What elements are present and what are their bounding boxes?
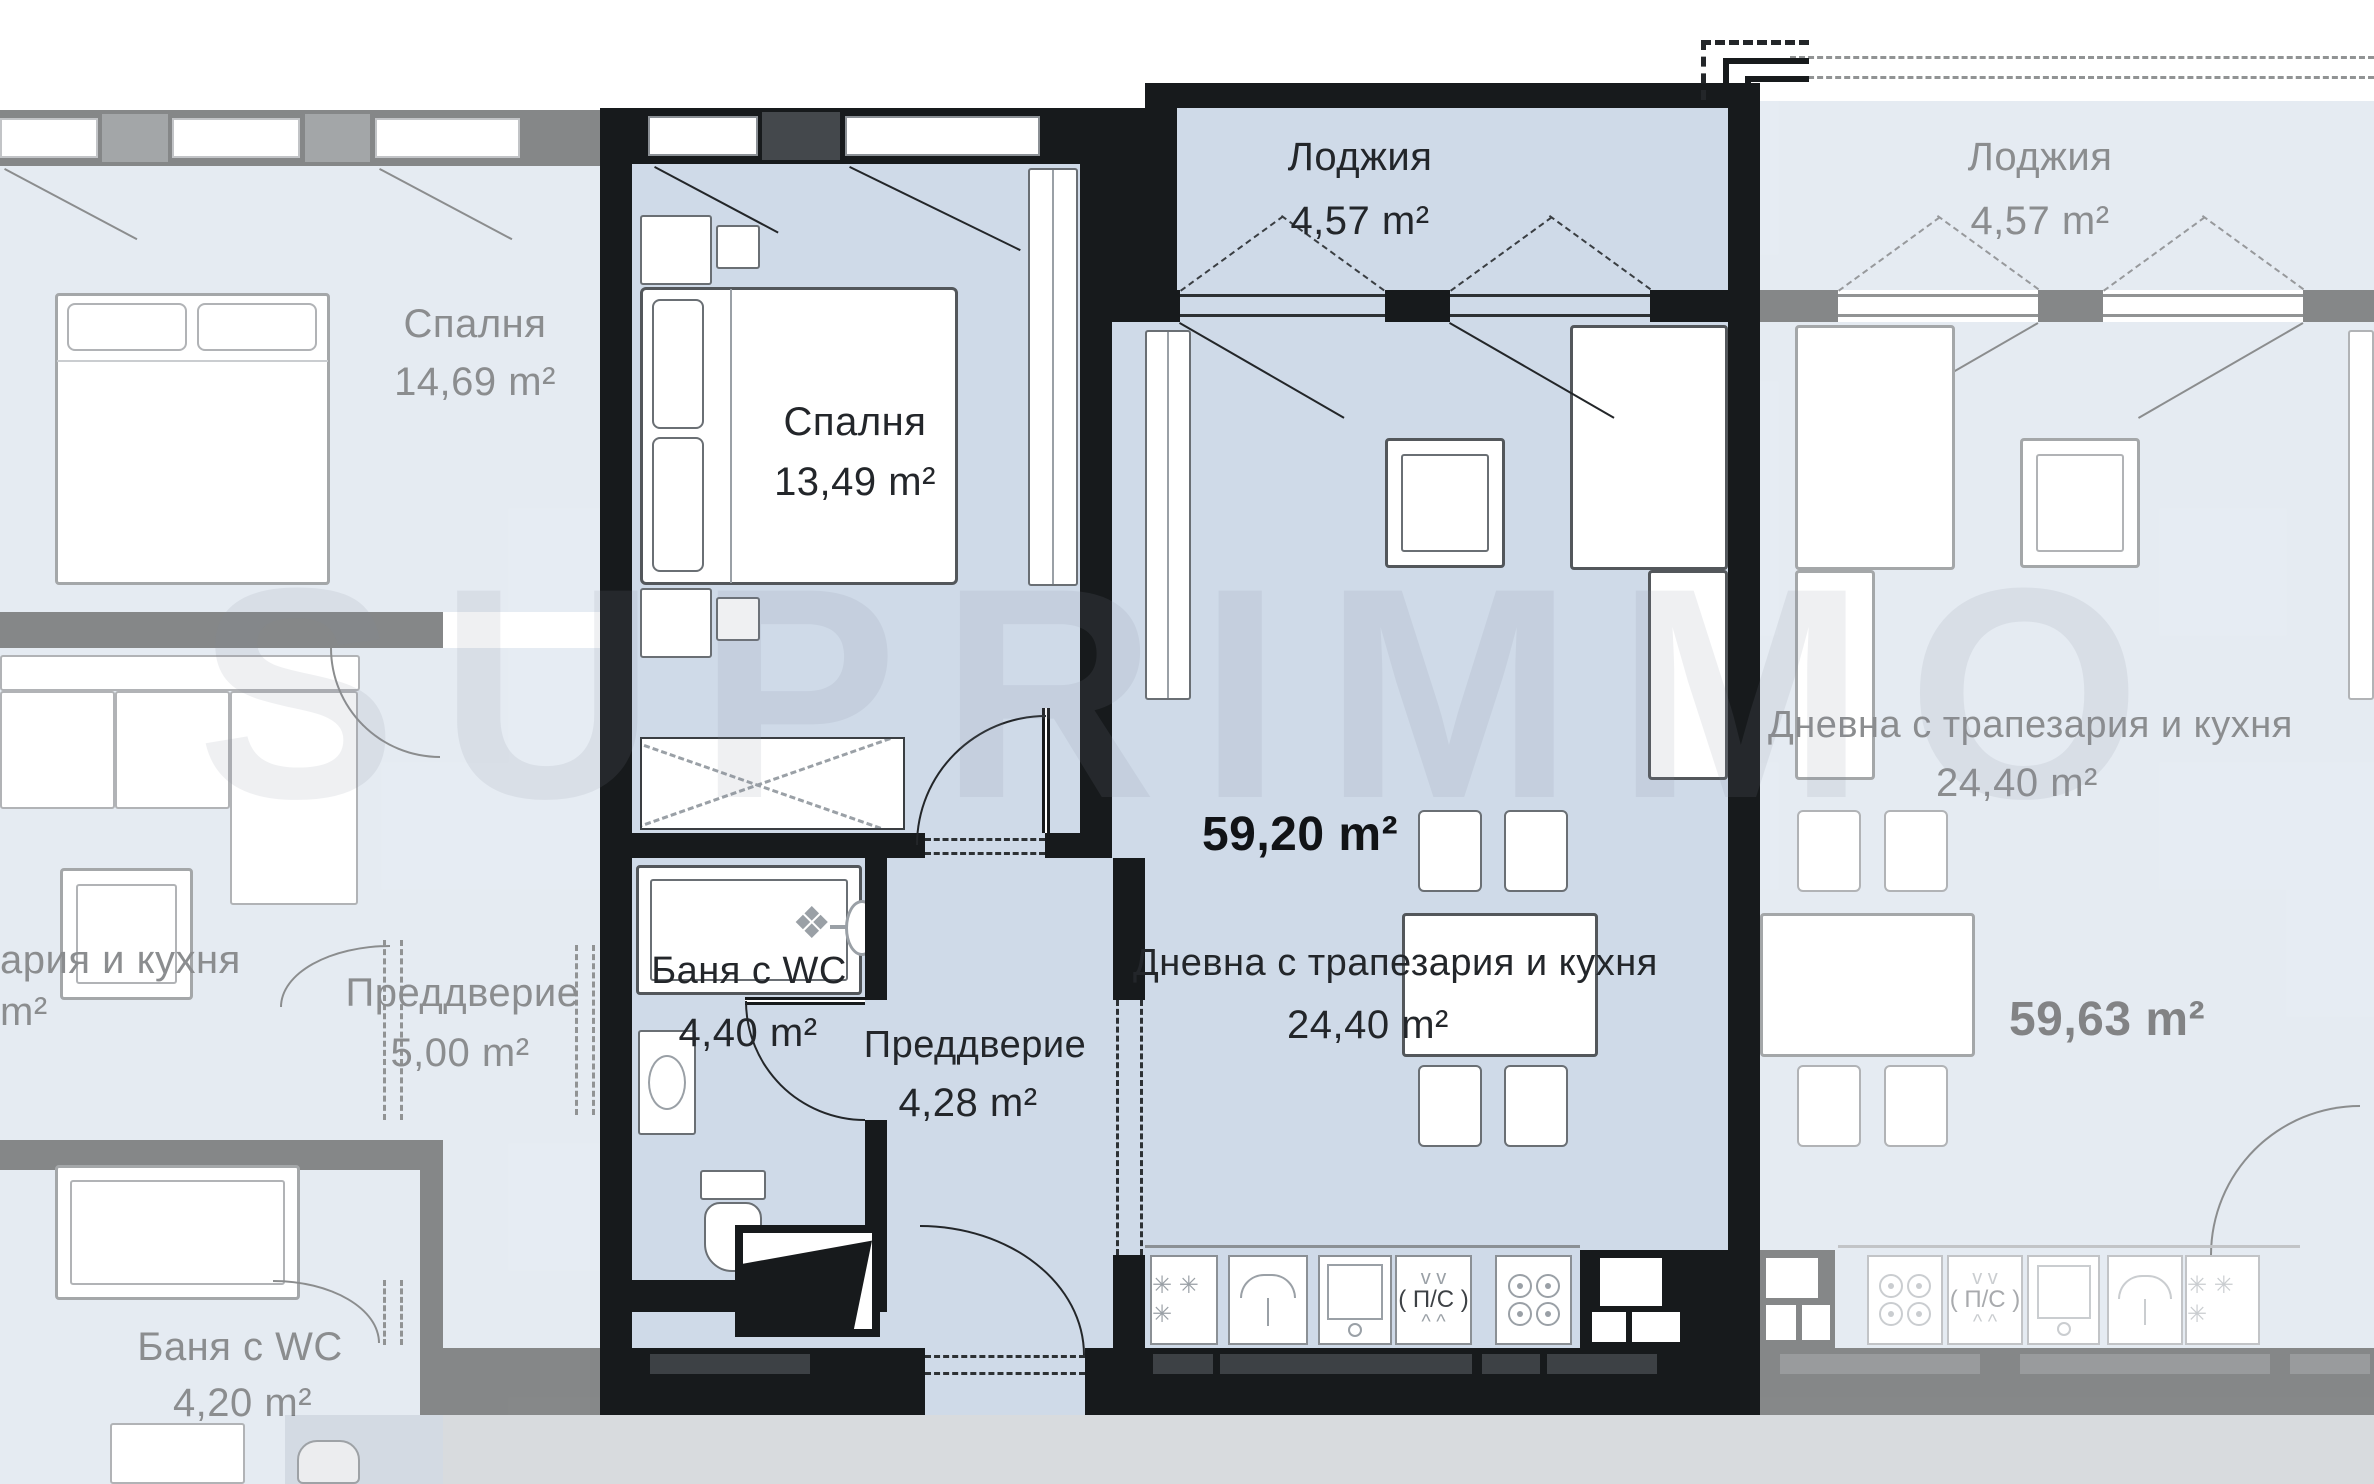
burner-icon: [1907, 1302, 1931, 1326]
closet-x-line-1: [640, 741, 898, 830]
main-hall-label: Преддверие: [860, 1018, 1090, 1072]
right-corner-box-2: [1766, 1305, 1796, 1340]
right-dishwasher: v v ( П/С ) ^ ^: [1947, 1255, 2023, 1345]
main-hall-opening-dash-2: [1140, 1000, 1143, 1255]
left-bath-door-dash-1: [383, 1280, 386, 1345]
hood-stem-icon: [1267, 1298, 1269, 1326]
main-loggia-wall-seg1: [1157, 290, 1180, 322]
right-counter-line: [1838, 1245, 2300, 1248]
main-nightstand-1: [640, 215, 712, 285]
left-sofa-chaise: [230, 691, 358, 905]
right-gap2-line-bottom: [2103, 314, 2303, 317]
main-sink: [1318, 1255, 1392, 1345]
left-living-label-fragment: ария и кухня: [0, 933, 245, 987]
main-total-area: 59,20 m²: [1180, 808, 1420, 862]
terrace-strip: [285, 1415, 2374, 1484]
main-gap2-line-top: [1450, 294, 1650, 297]
main-left-wall: [600, 108, 632, 1415]
left-vanity: [110, 1423, 245, 1484]
main-entry-dash-1: [925, 1355, 1085, 1358]
main-corner-box-1: [1600, 1258, 1662, 1306]
freezer-icon: ✳ ✳ ✳: [2187, 1271, 2258, 1329]
main-counter-line: [1145, 1245, 1580, 1248]
main-window-2: [845, 116, 1040, 156]
right-living-label: Дневна с трапезария и кухня: [1768, 698, 2258, 752]
main-shaft-box: [735, 1225, 880, 1337]
main-lamp-1: [716, 225, 760, 269]
left-bathtub-inner: [70, 1180, 285, 1285]
main-bath-label: Баня с WC: [640, 944, 858, 998]
right-sofa-main: [1795, 325, 1955, 570]
main-bed-pillow-2: [652, 437, 704, 572]
right-dishwasher-label: ( П/С ): [1950, 1289, 2021, 1311]
right-chair-2: [1884, 810, 1948, 892]
main-lamp-2: [716, 597, 760, 641]
right-stove: [1867, 1255, 1943, 1345]
sink-drain-icon: [1348, 1323, 1362, 1337]
main-sofa-chaise: [1648, 570, 1728, 780]
main-window-1: [648, 116, 758, 156]
left-toilet: [297, 1440, 360, 1484]
main-window-pier: [762, 112, 840, 160]
left-bath-label: Баня с WC: [130, 1320, 350, 1374]
right-coffee-table-inner: [2036, 454, 2124, 552]
main-wall-band-1: [650, 1354, 810, 1374]
main-shaft-wedge: [743, 1233, 872, 1329]
main-right-wall: [1728, 83, 1760, 1415]
main-bed-pillow-1: [652, 299, 704, 429]
main-coffee-table-inner: [1401, 454, 1489, 552]
main-bedroom-door-dash-2: [925, 852, 1045, 855]
right-living-area: 24,40 m²: [1936, 756, 2096, 810]
main-sofa-main: [1570, 325, 1728, 570]
left-window-2: [172, 118, 300, 158]
right-loggia-wall-seg2: [2038, 290, 2103, 322]
right-roof-dash-2: [1790, 76, 2374, 79]
main-wall-junction: [1080, 108, 1157, 322]
main-hood: [1228, 1255, 1308, 1345]
sink-drain-icon: [2057, 1322, 2071, 1336]
right-chair-3: [1797, 1065, 1861, 1147]
main-stove: [1495, 1255, 1572, 1345]
right-corner-box-1: [1766, 1258, 1818, 1298]
shower-valve-icon: ❖: [792, 898, 831, 949]
right-chair-1: [1797, 810, 1861, 892]
burner-icon: [1879, 1302, 1903, 1326]
main-closet: [640, 737, 905, 830]
left-right-wall-lower: [420, 1140, 443, 1415]
main-bath-area: 4,40 m²: [648, 1006, 848, 1060]
right-loggia-wall-seg3: [2303, 290, 2374, 322]
right-tv-cabinet: [2348, 330, 2374, 700]
left-window-1: [0, 118, 98, 158]
burner-icon: [1879, 1274, 1903, 1298]
freezer-icon: ✳ ✳ ✳: [1152, 1271, 1216, 1329]
left-window-3: [375, 118, 520, 158]
right-loggia-area: 4,57 m²: [1950, 194, 2130, 248]
main-chair-4: [1504, 1065, 1568, 1147]
left-window-pier-2: [305, 114, 370, 162]
left-living-area-fragment: m²: [0, 985, 60, 1039]
left-mid-wall: [0, 612, 443, 648]
main-loggia-label: Лоджия: [1270, 130, 1450, 184]
main-loggia-area: 4,57 m²: [1270, 194, 1450, 248]
right-gap1-line-bottom: [1838, 314, 2038, 317]
left-bedroom-label: Спалня: [390, 297, 560, 351]
main-bedroom-door-dash-1: [925, 838, 1045, 841]
floor-plan: Спалня 14,69 m² ария и кухня m² Преддвер…: [0, 0, 2374, 1484]
left-bath-door-dash-2: [400, 1280, 403, 1345]
main-bedroom-area: 13,49 m²: [735, 455, 975, 509]
main-chair-2: [1504, 810, 1568, 892]
main-fridge: ✳ ✳ ✳: [1150, 1255, 1218, 1345]
hood-stem-icon: [2144, 1299, 2146, 1325]
vent-bottom-icon: ^ ^: [1973, 1311, 1997, 1333]
right-total-area: 59,63 m²: [2007, 993, 2207, 1047]
main-wall-band-4: [1482, 1354, 1540, 1374]
main-living-label: Дневна с трапезария и кухня: [1133, 936, 1588, 990]
main-dishwasher: v v ( П/С ) ^ ^: [1395, 1255, 1472, 1345]
right-sink: [2027, 1255, 2100, 1345]
right-hood: [2107, 1255, 2183, 1345]
right-gap2-line-top: [2103, 294, 2303, 297]
hood-dome-icon: [1240, 1274, 1296, 1298]
main-bath-right-wall-upper: [865, 858, 887, 1000]
sink-basin-icon: [2037, 1265, 2091, 1319]
main-bedroom-bottom-wall: [600, 833, 925, 858]
corner-bracket-3: [1745, 76, 1809, 100]
right-wall-band-2: [2020, 1354, 2270, 1374]
left-entry-dash-2: [592, 945, 595, 1115]
main-corner-box-3: [1632, 1312, 1680, 1342]
shower-arm-line: [830, 925, 848, 929]
main-loggia-top-wall: [1145, 83, 1760, 108]
left-bath-area: 4,20 m²: [155, 1376, 330, 1430]
right-wall-band-3: [2290, 1354, 2370, 1374]
right-stove-row-1: [1877, 1272, 1933, 1300]
right-fridge: ✳ ✳ ✳: [2185, 1255, 2260, 1345]
main-wall-band-3: [1220, 1354, 1472, 1374]
burner-icon: [1508, 1302, 1532, 1326]
main-chair-1: [1418, 810, 1482, 892]
main-nightstand-2: [640, 588, 712, 658]
main-entry-dash-2: [925, 1372, 1085, 1375]
left-bedroom-area: 14,69 m²: [385, 355, 565, 409]
right-dining-table: [1760, 913, 1975, 1057]
vent-bottom-icon: ^ ^: [1421, 1311, 1445, 1333]
burner-icon: [1508, 1274, 1532, 1298]
main-entry-gap-floor: [925, 1348, 1085, 1415]
left-window-pier-1: [102, 114, 168, 162]
right-corner-box-3: [1802, 1305, 1830, 1340]
left-bed-blanket-line: [57, 360, 328, 362]
main-gap1-line-top: [1180, 294, 1385, 297]
main-corner-box-2: [1592, 1312, 1626, 1342]
main-bedroom-door-stub: [1045, 833, 1080, 858]
right-chair-4: [1884, 1065, 1948, 1147]
right-roof-dash-1: [1790, 56, 2374, 59]
right-wall-band-1: [1780, 1354, 1980, 1374]
left-sofa-seat-1: [0, 691, 115, 809]
burner-icon: [1536, 1274, 1560, 1298]
main-bedroom-label: Спалня: [735, 395, 975, 449]
main-wardrobe-line: [1052, 170, 1054, 584]
main-hall-wall-lower: [1113, 1255, 1145, 1348]
burner-icon: [1536, 1302, 1560, 1326]
main-washbasin-bowl: [648, 1055, 686, 1110]
left-hall-label: Преддверие: [345, 966, 580, 1020]
main-hall-area: 4,28 m²: [868, 1076, 1068, 1130]
hood-dome-icon: [2118, 1275, 2172, 1299]
right-loggia-label: Лоджия: [1950, 130, 2130, 184]
right-stove-row-2: [1877, 1300, 1933, 1328]
right-loggia-wall-seg1: [1760, 290, 1838, 322]
main-divider-wall: [1080, 322, 1112, 858]
main-loggia-wall-seg3: [1650, 290, 1728, 322]
main-tv-cabinet-line: [1167, 332, 1169, 698]
right-gap1-line-top: [1838, 294, 2038, 297]
main-wall-band-2: [1153, 1354, 1213, 1374]
main-stove-row-1: [1506, 1272, 1562, 1300]
sink-basin-icon: [1327, 1264, 1383, 1320]
left-bottom-wall: [443, 1348, 600, 1415]
main-hall-opening-dash-1: [1116, 1000, 1119, 1255]
main-loggia-wall-seg2: [1385, 290, 1450, 322]
left-bed-pillow-1: [67, 303, 187, 351]
left-hall-area: 5,00 m²: [370, 1026, 550, 1080]
main-stove-row-2: [1506, 1300, 1562, 1328]
closet-x-line-2: [640, 737, 899, 829]
main-gap2-line-bottom: [1450, 314, 1650, 317]
burner-icon: [1907, 1274, 1931, 1298]
main-wall-band-5: [1547, 1354, 1657, 1374]
main-gap1-line-bottom: [1180, 314, 1385, 317]
main-bed-blanket-line: [730, 289, 732, 583]
main-chair-3: [1418, 1065, 1482, 1147]
main-toilet-tank: [700, 1170, 766, 1200]
main-dishwasher-label: ( П/С ): [1398, 1289, 1469, 1311]
left-sofa-seat-2: [115, 691, 230, 809]
main-living-area: 24,40 m²: [1287, 998, 1447, 1052]
left-sofa-back: [0, 655, 360, 691]
left-bed-pillow-2: [197, 303, 317, 351]
